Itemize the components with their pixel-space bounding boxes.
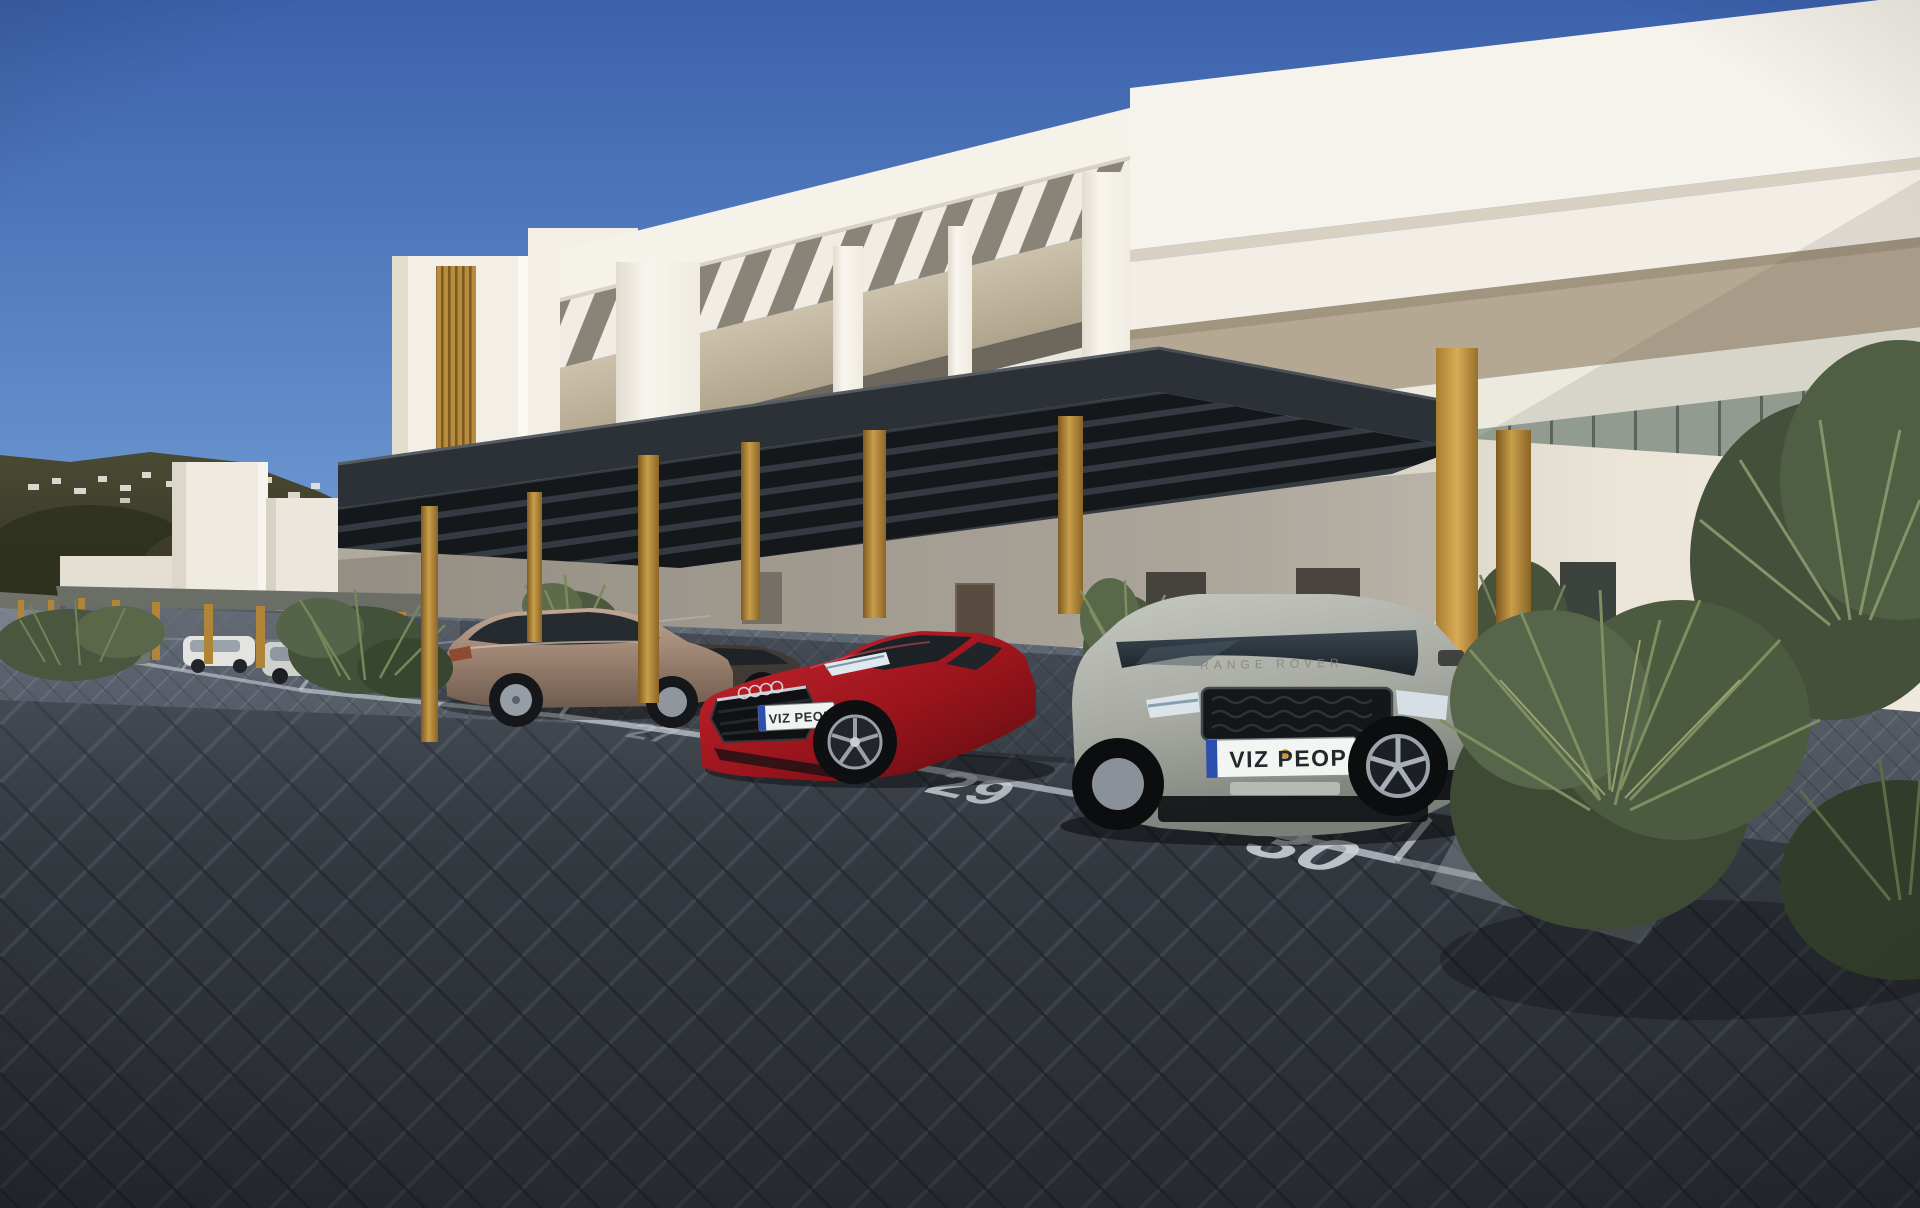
scene-canvas: 27 28 29 30 xyxy=(0,0,1920,1208)
architectural-render-scene: 27 28 29 30 xyxy=(0,0,1920,1208)
vignette xyxy=(0,0,1920,1208)
